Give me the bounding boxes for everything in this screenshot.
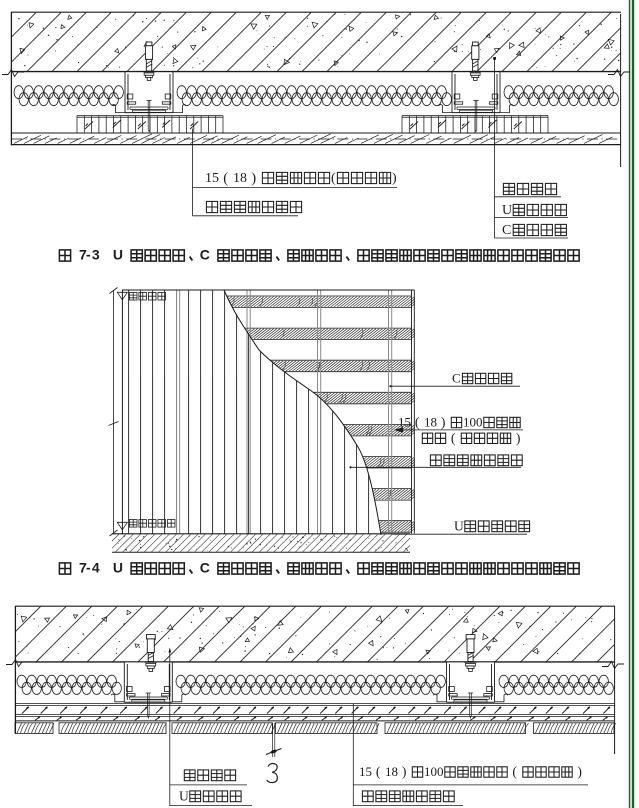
svg-text:U: U: [179, 788, 189, 803]
svg-text:): ): [441, 415, 446, 431]
svg-text:(: (: [223, 171, 228, 187]
svg-text:(: (: [415, 415, 420, 431]
svg-text:1: 1: [205, 171, 212, 186]
svg-text:C: C: [200, 560, 210, 576]
svg-text:): ): [392, 171, 397, 186]
svg-text:0: 0: [437, 764, 444, 779]
svg-text:C: C: [502, 223, 511, 238]
svg-text:): ): [251, 171, 256, 187]
svg-text:): ): [516, 431, 521, 447]
svg-text:0: 0: [476, 414, 483, 429]
svg-text:5: 5: [405, 414, 412, 429]
svg-text:5: 5: [366, 764, 373, 779]
svg-text:U: U: [454, 518, 464, 533]
svg-text:(: (: [376, 764, 381, 780]
svg-text:C: C: [452, 370, 461, 385]
svg-text:-: -: [86, 560, 91, 576]
svg-text:(: (: [331, 171, 336, 186]
svg-text:(: (: [512, 764, 517, 780]
svg-text:C: C: [200, 247, 210, 263]
svg-text:U: U: [113, 560, 123, 576]
svg-text:-: -: [86, 247, 91, 263]
svg-text:5: 5: [212, 171, 219, 186]
svg-text:U: U: [502, 203, 512, 218]
svg-text:(: (: [451, 431, 456, 447]
svg-text:4: 4: [92, 560, 100, 576]
svg-text:8: 8: [431, 414, 438, 429]
svg-text:): ): [402, 764, 407, 780]
svg-text:8: 8: [240, 171, 247, 186]
svg-text:3: 3: [92, 247, 100, 263]
svg-text:8: 8: [392, 764, 399, 779]
svg-text:): ): [577, 764, 582, 780]
svg-text:U: U: [113, 247, 123, 263]
svg-text:1: 1: [233, 171, 240, 186]
